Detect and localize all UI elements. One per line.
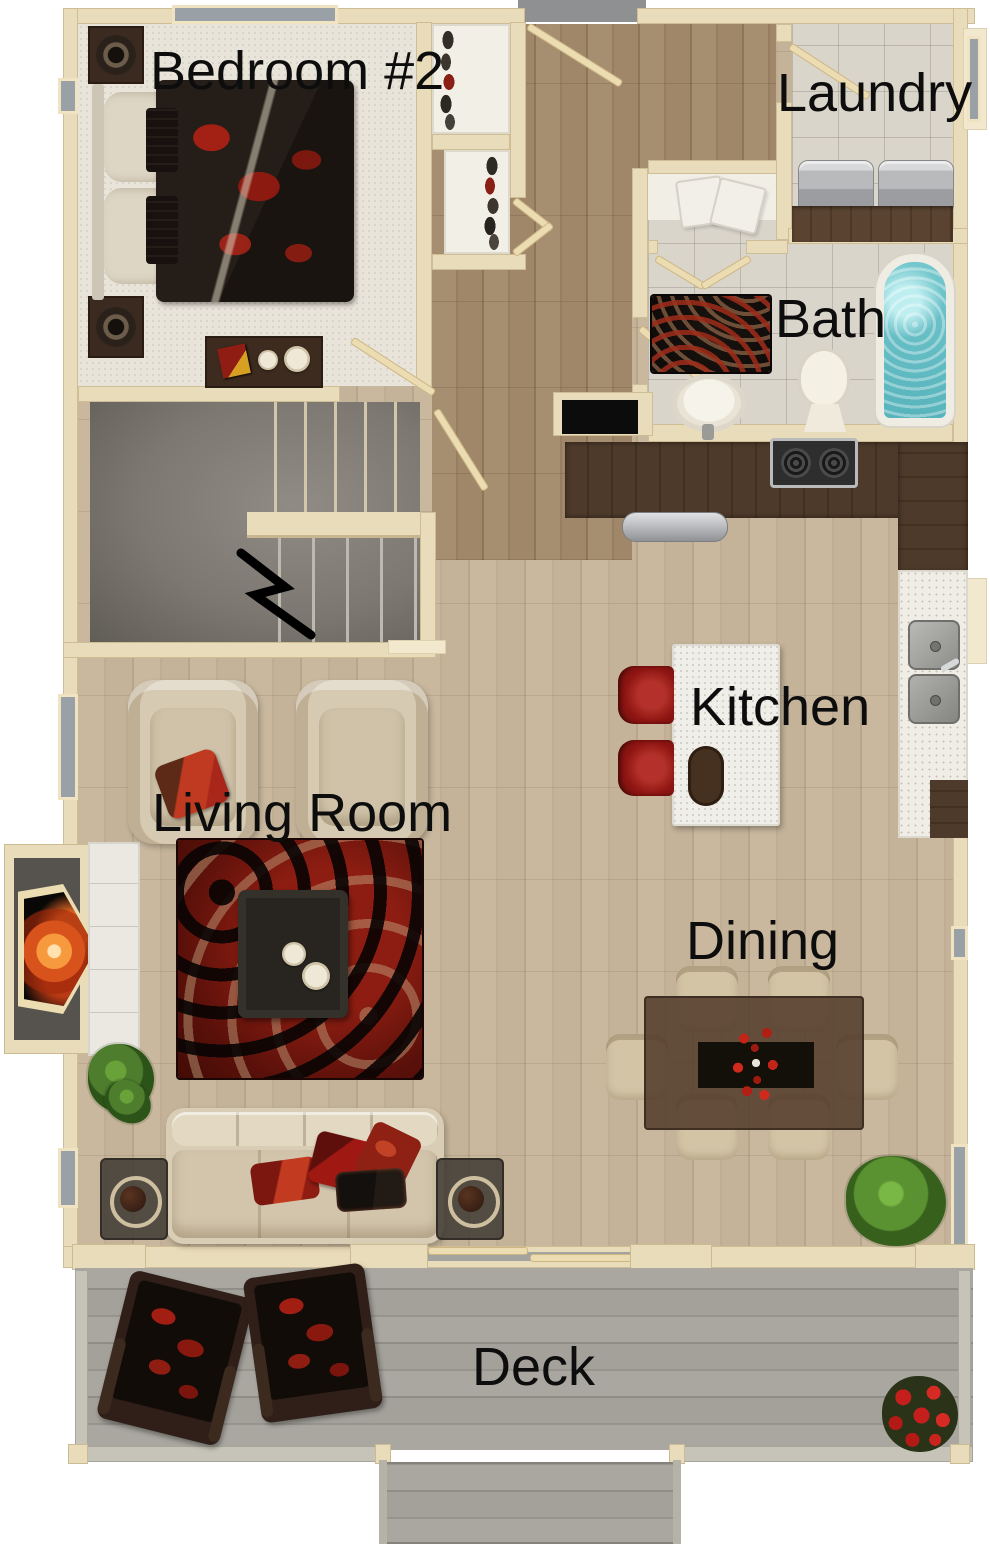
wall-linen-bottom-left bbox=[648, 240, 658, 254]
sink-basin bbox=[908, 674, 960, 724]
room-label-deck: Deck bbox=[472, 1338, 595, 1396]
stove bbox=[770, 438, 858, 488]
wall-bedroom-bottom bbox=[78, 386, 340, 402]
candle bbox=[282, 942, 306, 966]
wall-laundry-left-upper bbox=[776, 24, 792, 42]
wall-top-right bbox=[637, 8, 975, 24]
burner bbox=[819, 448, 849, 478]
bed-runner-cushion-top bbox=[146, 108, 178, 172]
wall-hall-bath-upper bbox=[632, 168, 648, 318]
wall-linen-bottom-right bbox=[746, 240, 788, 254]
wall-closet-right bbox=[510, 22, 526, 198]
room-label-dining: Dining bbox=[686, 912, 839, 970]
deck-chair bbox=[242, 1262, 383, 1424]
deck-steps bbox=[387, 1462, 675, 1544]
candle bbox=[258, 350, 278, 370]
coffee-table bbox=[238, 890, 348, 1018]
bedroom-dresser bbox=[205, 336, 323, 388]
room-label-kitchen: Kitchen bbox=[690, 678, 870, 736]
wall-stair-bottom bbox=[63, 642, 436, 658]
wall-stair-right bbox=[420, 512, 436, 658]
wall-post bbox=[915, 1244, 975, 1270]
window-bedroom-top bbox=[172, 5, 338, 24]
sink-faucet bbox=[702, 424, 714, 440]
washer bbox=[798, 160, 874, 212]
entry-porch bbox=[518, 0, 646, 22]
stair-break-line bbox=[233, 545, 323, 645]
kitchen-counter-right bbox=[898, 442, 968, 572]
bath-rug bbox=[652, 296, 770, 372]
deck-post bbox=[68, 1444, 88, 1464]
bed-runner-cushion-bottom bbox=[146, 196, 178, 264]
bathtub bbox=[876, 254, 954, 426]
kitchen-counter-top bbox=[565, 442, 932, 518]
refrigerator bbox=[562, 400, 638, 434]
throw-pillow-black bbox=[335, 1168, 408, 1213]
drain bbox=[930, 641, 941, 652]
shoes bbox=[478, 154, 508, 250]
room-label-living: Living Room bbox=[152, 784, 452, 842]
window-dining-right bbox=[951, 926, 968, 960]
fireplace-hearth bbox=[88, 842, 140, 1056]
wall-left bbox=[63, 8, 78, 1268]
stairs-landing-rail bbox=[247, 512, 436, 538]
bar-stool bbox=[618, 666, 674, 724]
drain bbox=[930, 695, 941, 706]
deck-rail-left bbox=[75, 1270, 88, 1450]
stairs-upper-flight bbox=[247, 402, 420, 512]
candle bbox=[302, 962, 330, 990]
deck-step-stringer bbox=[379, 1460, 387, 1544]
speaker-icon bbox=[96, 307, 136, 347]
toilet-bowl bbox=[798, 348, 850, 408]
deck-chair-cushion bbox=[253, 1272, 370, 1401]
window-bump-kitchen-right bbox=[965, 578, 987, 664]
end-table bbox=[100, 1158, 168, 1240]
kitchen-counter-end-cabinet bbox=[930, 780, 968, 838]
patio-slider-right bbox=[530, 1254, 632, 1262]
laundry-counter bbox=[792, 206, 953, 242]
bar-stool bbox=[618, 740, 674, 796]
wall-stair-bottom-cap bbox=[388, 640, 446, 654]
book bbox=[217, 343, 251, 378]
end-table bbox=[436, 1158, 504, 1240]
deck-post bbox=[950, 1444, 970, 1464]
deck-rail-bottom-left bbox=[75, 1446, 385, 1462]
burner bbox=[781, 448, 811, 478]
candle bbox=[284, 346, 310, 372]
dryer bbox=[878, 160, 954, 212]
sofa bbox=[166, 1108, 444, 1244]
room-label-bath: Bath bbox=[775, 290, 886, 348]
window-living-left-lower bbox=[58, 1148, 78, 1208]
closet-bottom bbox=[444, 150, 510, 254]
wall-closet-bottom bbox=[432, 254, 526, 270]
nightstand-top bbox=[88, 26, 144, 84]
deck-step-stringer bbox=[673, 1460, 681, 1544]
nightstand-bottom bbox=[88, 296, 144, 358]
window-living-left bbox=[58, 694, 78, 800]
kitchen-sink bbox=[906, 618, 962, 726]
speaker-icon bbox=[96, 35, 136, 75]
centerpiece-flowers bbox=[726, 1016, 786, 1110]
wall-post bbox=[72, 1244, 146, 1270]
tomato-bowl bbox=[688, 746, 724, 806]
dishwasher-handle bbox=[622, 512, 728, 542]
bed-comforter bbox=[156, 80, 354, 302]
bed-headboard bbox=[92, 84, 104, 300]
decor-sphere bbox=[120, 1186, 146, 1212]
room-label-bedroom2: Bedroom #2 bbox=[150, 42, 444, 100]
potted-plant-dining bbox=[846, 1156, 946, 1246]
room-label-laundry: Laundry bbox=[777, 64, 972, 122]
deck-rail-right bbox=[958, 1270, 971, 1450]
decor-sphere bbox=[458, 1186, 484, 1212]
wall-linen-top bbox=[648, 160, 788, 174]
patio-slider-left bbox=[428, 1247, 528, 1255]
window-bedroom-left bbox=[58, 78, 78, 114]
floor-plan: Bedroom #2 Laundry Bath Kitchen Living R… bbox=[0, 0, 990, 1544]
deck-flower-pot bbox=[882, 1376, 958, 1452]
wall-closet-divider bbox=[432, 134, 510, 150]
